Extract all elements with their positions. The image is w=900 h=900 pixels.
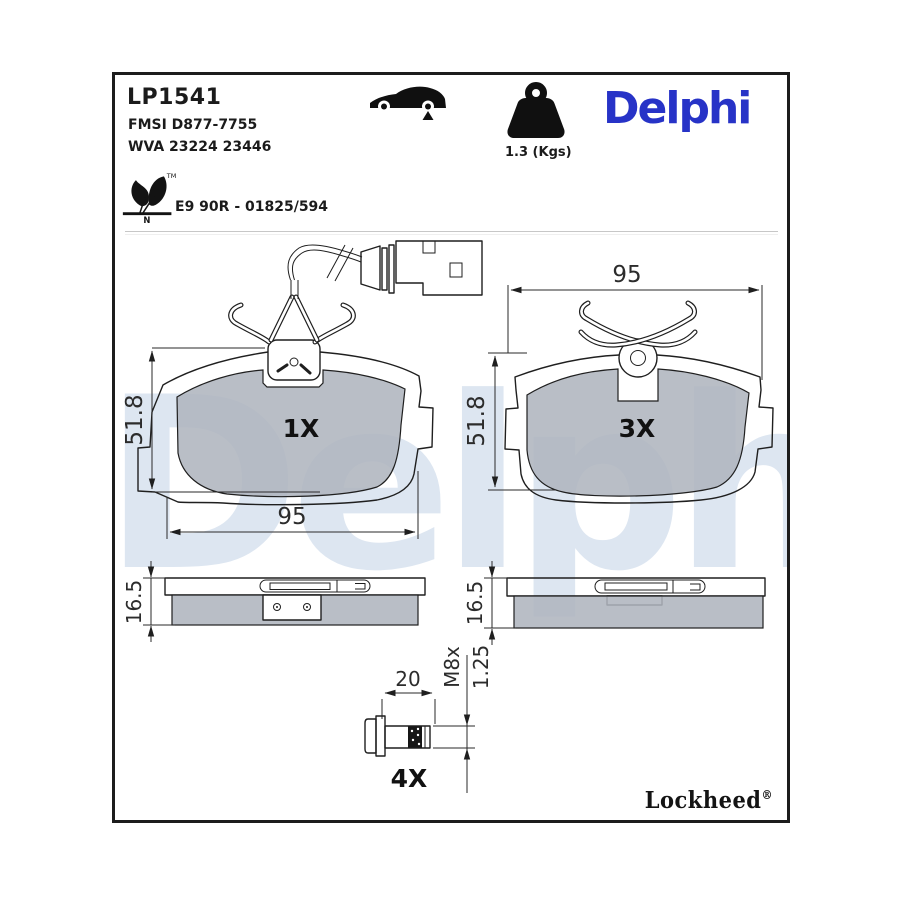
- pad-side-view-left: 16.5: [122, 561, 425, 642]
- dimension-thickness-left: 16.5: [122, 561, 175, 642]
- homologation-number: E9 90R - 01825/594: [175, 199, 328, 215]
- leaf-eco-icon: TM N: [121, 165, 177, 225]
- technical-drawing: 51.8 95 1X: [115, 75, 787, 820]
- pad-thickness-value: 16.5: [463, 581, 487, 626]
- pad-quantity-1x: 1X: [283, 414, 320, 443]
- leaf-tm-mark: TM: [166, 172, 177, 180]
- drawing-frame: Delphi LP1541 FMSI D877-7755 WVA 23224 2…: [112, 72, 790, 823]
- header-divider: [125, 231, 778, 235]
- part-number: LP1541: [127, 85, 221, 110]
- side-view-bracket: [263, 595, 321, 620]
- lockheed-logo: Lockheed®: [645, 786, 773, 814]
- pad-width-value: 95: [612, 262, 641, 288]
- pad-side-view-right: 16.5: [463, 561, 765, 645]
- bolt-thread-value-a: M8x: [440, 646, 464, 688]
- weight-value: 1.3 (Kgs): [505, 145, 572, 160]
- pad-height-value: 51.8: [122, 394, 148, 445]
- bolt-quantity-4x: 4X: [391, 764, 428, 793]
- pad-quantity-3x: 3X: [619, 414, 656, 443]
- pad-spring-clip: [581, 303, 695, 345]
- pad-height-value: 51.8: [464, 395, 490, 446]
- leaf-n-mark: N: [143, 215, 150, 225]
- pad-spring-clip: [231, 297, 354, 342]
- car-side-icon: [365, 79, 451, 125]
- dimension-bolt-thread: M8x 1.25: [433, 645, 493, 793]
- bolt-length-value: 20: [395, 667, 420, 691]
- pad-thickness-value: 16.5: [122, 580, 146, 625]
- pad-front-view-plain: 95 51.8 3X: [464, 262, 773, 503]
- wva-reference: WVA 23224 23446: [128, 139, 271, 155]
- kettlebell-weight-icon: [503, 81, 569, 143]
- rear-axle-marker-icon: [423, 111, 434, 120]
- caliper-bolt-drawing: 20 M8x 1.25: [365, 645, 493, 793]
- delphi-logo: Delphi: [603, 83, 750, 134]
- sensor-connector: [361, 241, 482, 295]
- thread-lock-patch: [408, 727, 422, 748]
- lockheed-wordmark: Lockheed: [645, 786, 762, 814]
- product-sheet: Delphi LP1541 FMSI D877-7755 WVA 23224 2…: [0, 0, 900, 900]
- wear-sensor-wire: [288, 245, 362, 299]
- pad-width-value: 95: [277, 504, 306, 530]
- pad-front-view-with-sensor: 51.8 95 1X: [122, 241, 482, 539]
- bolt-thread-value-b: 1.25: [469, 645, 493, 690]
- fmsi-reference: FMSI D877-7755: [128, 117, 257, 133]
- dimension-thickness-right: 16.5: [463, 561, 516, 645]
- registered-mark: ®: [762, 788, 774, 802]
